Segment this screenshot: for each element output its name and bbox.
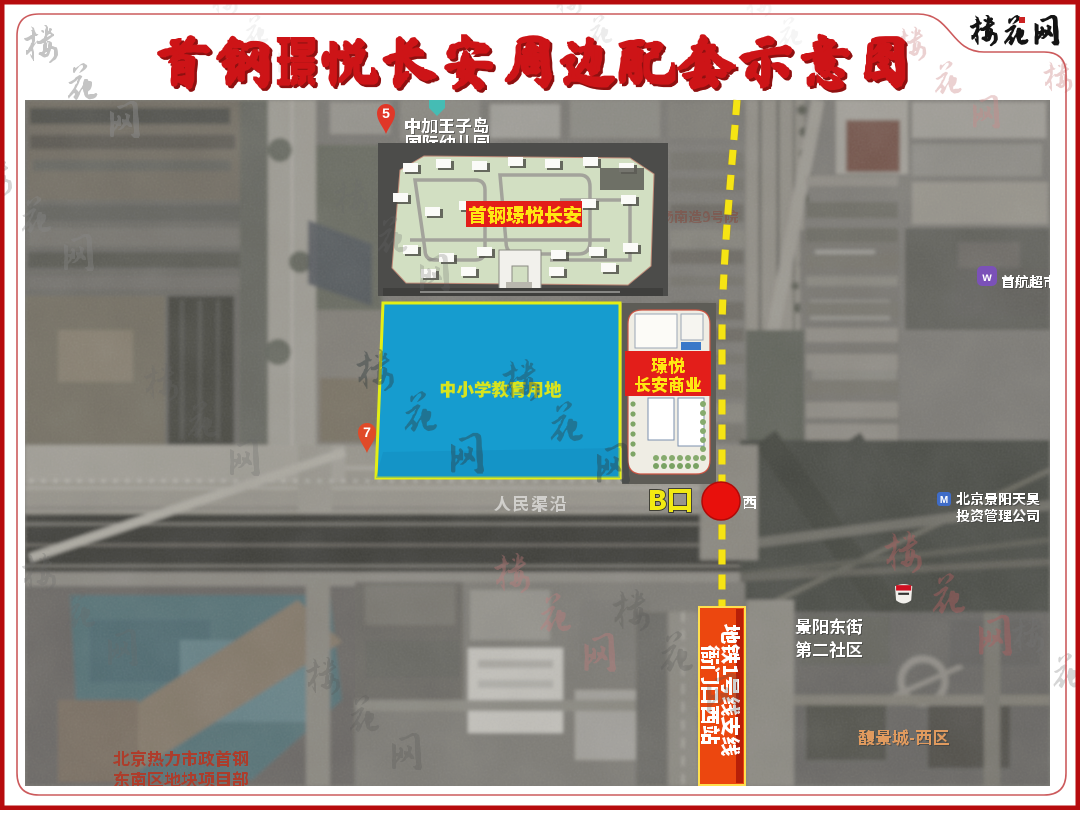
svg-text:M: M xyxy=(940,495,948,506)
svg-text:5: 5 xyxy=(382,105,390,121)
svg-text:w: w xyxy=(981,270,992,284)
svg-text:7: 7 xyxy=(363,424,371,440)
